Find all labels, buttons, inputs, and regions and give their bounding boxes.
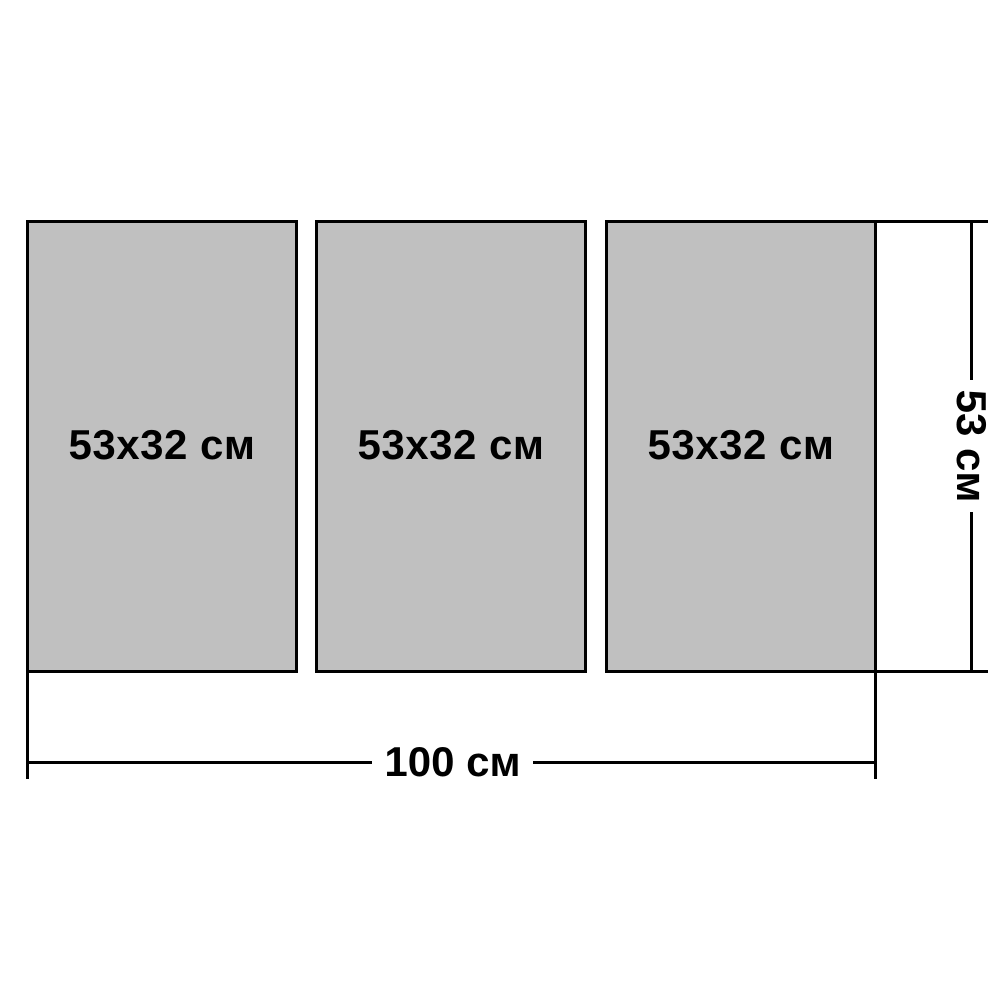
panel-1-size-label: 53x32 см [69,421,256,469]
panel-3: 53x32 см [605,220,877,673]
panel-1: 53x32 см [26,220,298,673]
width-dimension-label: 100 см [372,741,533,783]
extension-line-bottom-right [877,670,988,673]
width-dimension-line-left [26,761,372,764]
panel-2: 53x32 см [315,220,587,673]
panel-3-size-label: 53x32 см [648,421,835,469]
height-dimension-line-bottom [970,512,973,670]
height-dimension-label: 53 см [947,390,995,503]
size-diagram: 53x32 см 53x32 см 53x32 см 100 см 53 см [0,0,1000,1000]
panel-2-size-label: 53x32 см [358,421,545,469]
height-dimension-line-top [970,222,973,380]
width-dimension-line-right [533,761,876,764]
